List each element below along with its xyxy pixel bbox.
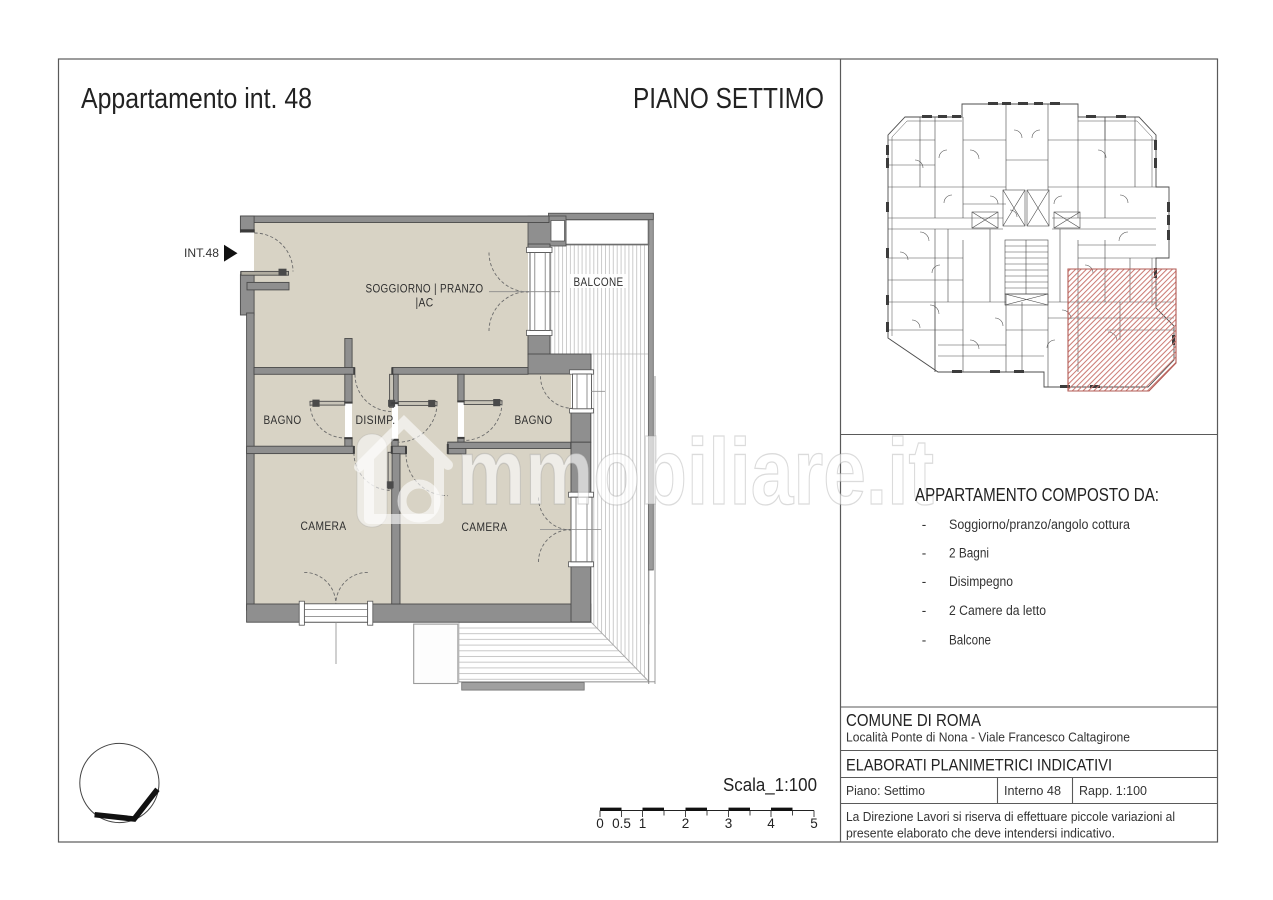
svg-text:Balcone: Balcone (949, 633, 991, 648)
svg-text:2 Bagni: 2 Bagni (949, 546, 989, 561)
svg-text:SOGGIORNO | PRANZO: SOGGIORNO | PRANZO (366, 284, 484, 296)
svg-text:DISIMP.: DISIMP. (356, 415, 396, 427)
svg-text:1: 1 (639, 816, 647, 831)
svg-text:INT.48: INT.48 (184, 246, 219, 260)
svg-text:BALCONE: BALCONE (574, 277, 624, 289)
svg-text:APPARTAMENTO COMPOSTO DA:: APPARTAMENTO COMPOSTO DA: (915, 484, 1159, 505)
svg-text:2: 2 (682, 816, 690, 831)
svg-text:BAGNO: BAGNO (264, 415, 302, 427)
svg-text:-: - (922, 517, 927, 532)
svg-text:-: - (922, 574, 927, 589)
svg-text:Interno 48: Interno 48 (1004, 783, 1061, 798)
svg-text:Scala_1:100: Scala_1:100 (723, 775, 817, 796)
svg-text:COMUNE DI ROMA: COMUNE DI ROMA (846, 710, 981, 730)
svg-text:presente elaborato che deve in: presente elaborato che deve intendersi i… (846, 827, 1115, 841)
svg-text:|AC: |AC (416, 298, 434, 310)
svg-text:-: - (922, 603, 927, 618)
svg-text:PIANO SETTIMO: PIANO SETTIMO (633, 83, 824, 115)
svg-text:La Direzione Lavori si riserva: La Direzione Lavori si riserva di effett… (846, 810, 1175, 824)
svg-text:Disimpegno: Disimpegno (949, 574, 1013, 589)
svg-text:-: - (922, 546, 927, 561)
svg-text:Appartamento int. 48: Appartamento int. 48 (81, 83, 312, 115)
svg-text:5: 5 (810, 816, 818, 831)
svg-text:4: 4 (767, 816, 775, 831)
svg-text:-: - (922, 633, 927, 648)
svg-text:Soggiorno/pranzo/angolo cottur: Soggiorno/pranzo/angolo cottura (949, 517, 1130, 532)
svg-text:Località Ponte di Nona - Viale: Località Ponte di Nona - Viale Francesco… (846, 731, 1130, 745)
svg-text:Rapp. 1:100: Rapp. 1:100 (1079, 783, 1147, 798)
svg-text:0: 0 (596, 816, 604, 831)
svg-text:CAMERA: CAMERA (301, 521, 347, 533)
svg-text:2 Camere da letto: 2 Camere da letto (949, 603, 1046, 618)
svg-text:Piano: Settimo: Piano: Settimo (846, 783, 925, 798)
svg-text:0.5: 0.5 (612, 816, 631, 831)
svg-text:3: 3 (725, 816, 733, 831)
svg-text:ELABORATI PLANIMETRICI INDICAT: ELABORATI PLANIMETRICI INDICATIVI (846, 757, 1112, 775)
